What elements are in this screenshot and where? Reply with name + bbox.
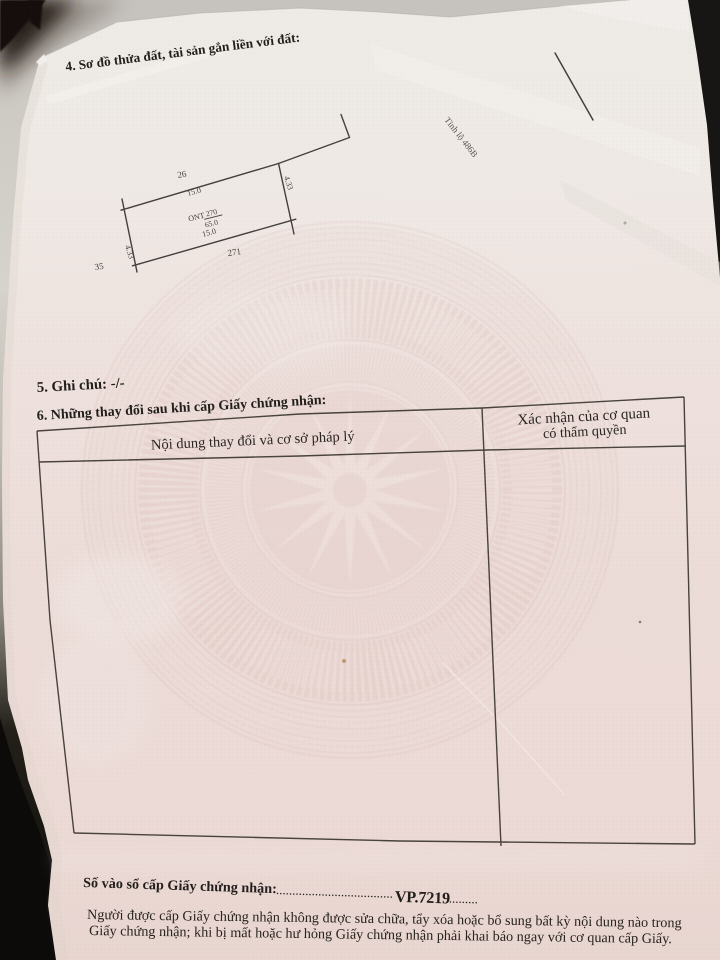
svg-text:VP.7219: VP.7219: [395, 888, 451, 908]
svg-text:.........: .........: [449, 891, 479, 907]
svg-text:271: 271: [227, 246, 242, 258]
